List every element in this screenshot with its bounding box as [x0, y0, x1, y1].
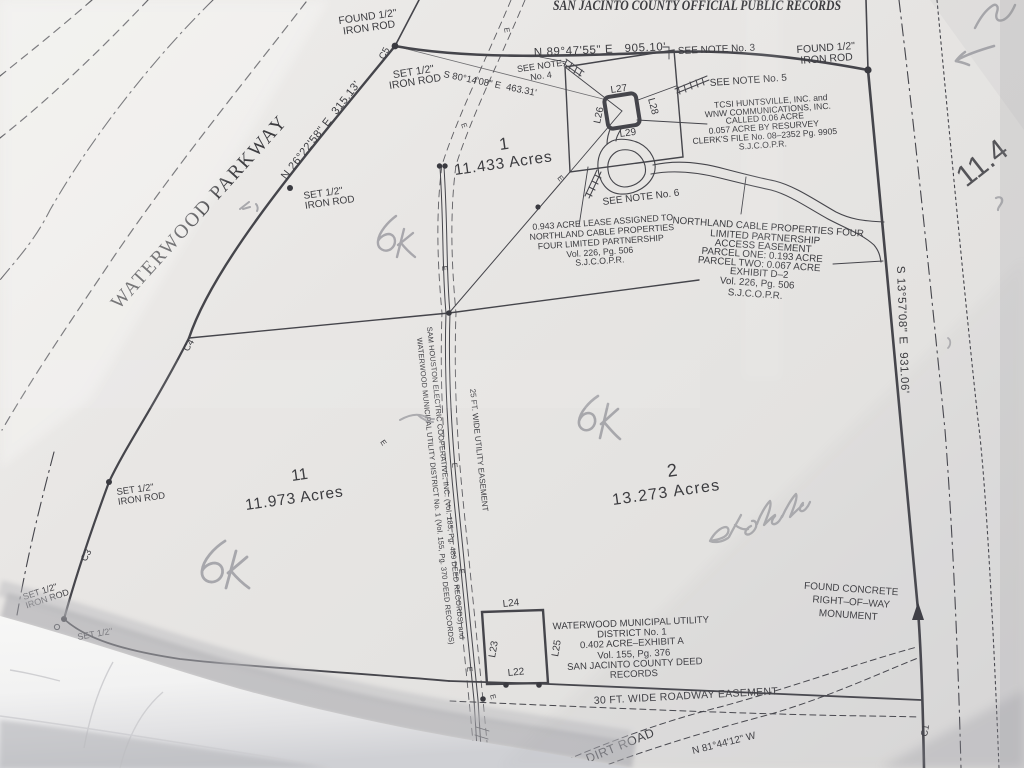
svg-text:L24: L24	[502, 597, 520, 610]
svg-text:E: E	[465, 666, 474, 672]
svg-text:E: E	[457, 568, 466, 574]
svg-text:SAN JACINTO COUNTY OFFICIAL PU: SAN JACINTO COUNTY OFFICIAL PUBLIC RECOR…	[553, 0, 841, 14]
svg-text:11: 11	[290, 466, 309, 485]
svg-text:E: E	[440, 265, 449, 271]
svg-text:L22: L22	[507, 666, 525, 679]
svg-text:E: E	[450, 462, 459, 468]
